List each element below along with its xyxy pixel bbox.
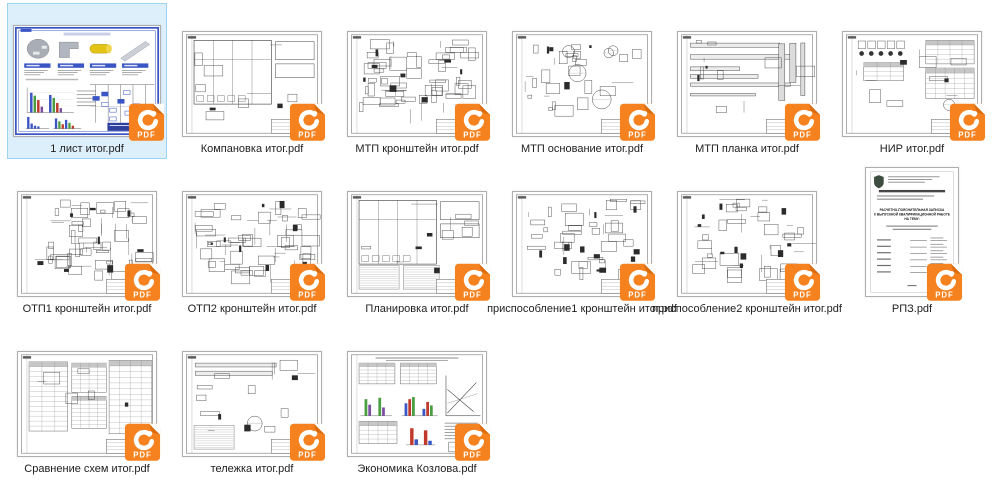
pdf-thumbnail[interactable]: PDF [182, 351, 322, 457]
file-tile[interactable]: PDFЭкономика Козлова.pdf [337, 323, 497, 479]
svg-text:PDF: PDF [298, 451, 316, 460]
file-name-label[interactable]: МТП основание итог.pdf [521, 143, 643, 156]
foxit-pdf-badge-icon: PDF [124, 261, 161, 302]
svg-text:PDF: PDF [298, 131, 316, 140]
foxit-pdf-badge-icon: PDF [949, 101, 986, 142]
file-tile[interactable]: PDFКомпановка итог.pdf [172, 3, 332, 159]
svg-text:PDF: PDF [298, 291, 316, 300]
file-tile[interactable]: PDFПланировка итог.pdf [337, 163, 497, 319]
foxit-pdf-badge-icon: PDF [454, 261, 491, 302]
file-tile[interactable]: PDFМТП основание итог.pdf [502, 3, 662, 159]
svg-text:PDF: PDF [463, 291, 481, 300]
pdf-thumbnail[interactable]: PDF [512, 31, 652, 137]
foxit-pdf-badge-icon: PDF [784, 101, 821, 142]
svg-text:РАСЧЕТНО-ПОЯСНИТЕЛЬНАЯ ЗАПИСКА: РАСЧЕТНО-ПОЯСНИТЕЛЬНАЯ ЗАПИСКА [880, 208, 945, 212]
pdf-thumbnail[interactable]: PDF [347, 191, 487, 297]
svg-text:PDF: PDF [463, 131, 481, 140]
file-tile[interactable]: PDF1 лист итог.pdf [7, 3, 167, 159]
file-tile[interactable]: PDFМТП кронштейн итог.pdf [337, 3, 497, 159]
pdf-thumbnail[interactable]: PDF [842, 31, 982, 137]
pdf-thumbnail[interactable]: PDF [182, 31, 322, 137]
file-name-label[interactable]: Экономика Козлова.pdf [357, 463, 476, 476]
svg-text:PDF: PDF [628, 131, 646, 140]
foxit-pdf-badge-icon: PDF [454, 101, 491, 142]
file-tile[interactable]: PDFСравнение схем итог.pdf [7, 323, 167, 479]
file-tile[interactable]: РАСЧЕТНО-ПОЯСНИТЕЛЬНАЯ ЗАПИСКАК ВЫПУСКНО… [832, 163, 992, 319]
file-grid: PDF1 лист итог.pdfPDFКомпановка итог.pdf… [0, 0, 1000, 482]
file-name-label[interactable]: Сравнение схем итог.pdf [24, 463, 149, 476]
svg-text:PDF: PDF [958, 131, 976, 140]
svg-text:К ВЫПУСКНОЙ КВАЛИФИКАЦИОННОЙ Р: К ВЫПУСКНОЙ КВАЛИФИКАЦИОННОЙ РАБОТЕ [874, 213, 951, 217]
foxit-pdf-badge-icon: PDF [619, 101, 656, 142]
svg-text:PDF: PDF [137, 131, 155, 140]
file-name-label[interactable]: ОТП2 кронштейн итог.pdf [188, 303, 317, 316]
foxit-pdf-badge-icon: PDF [128, 101, 165, 142]
file-tile[interactable]: PDFОТП2 кронштейн итог.pdf [172, 163, 332, 319]
file-name-label[interactable]: МТП кронштейн итог.pdf [355, 143, 478, 156]
foxit-pdf-badge-icon: PDF [784, 261, 821, 302]
pdf-thumbnail[interactable]: PDF [347, 351, 487, 457]
pdf-thumbnail[interactable]: PDF [182, 191, 322, 297]
svg-text:PDF: PDF [628, 291, 646, 300]
file-name-label[interactable]: приспособление1 кронштейн итог.pdf [487, 303, 677, 316]
file-name-label[interactable]: приспособление2 кронштейн итог.pdf [652, 303, 842, 316]
pdf-thumbnail[interactable]: PDF [13, 25, 161, 137]
svg-text:PDF: PDF [463, 451, 481, 460]
file-name-label[interactable]: Планировка итог.pdf [365, 303, 468, 316]
pdf-thumbnail[interactable]: РАСЧЕТНО-ПОЯСНИТЕЛЬНАЯ ЗАПИСКАК ВЫПУСКНО… [865, 167, 959, 297]
svg-text:НА ТЕМУ:: НА ТЕМУ: [904, 217, 919, 221]
file-tile[interactable]: PDFприспособление2 кронштейн итог.pdf [667, 163, 827, 319]
file-tile[interactable]: PDFНИР итог.pdf [832, 3, 992, 159]
file-name-label[interactable]: Компановка итог.pdf [201, 143, 304, 156]
foxit-pdf-badge-icon: PDF [124, 421, 161, 462]
foxit-pdf-badge-icon: PDF [289, 421, 326, 462]
file-name-label[interactable]: НИР итог.pdf [880, 143, 944, 156]
pdf-thumbnail[interactable]: PDF [677, 191, 817, 297]
svg-text:PDF: PDF [793, 131, 811, 140]
foxit-pdf-badge-icon: PDF [454, 421, 491, 462]
pdf-thumbnail[interactable]: PDF [677, 31, 817, 137]
foxit-pdf-badge-icon: PDF [289, 261, 326, 302]
svg-text:PDF: PDF [793, 291, 811, 300]
file-name-label[interactable]: МТП планка итог.pdf [695, 143, 799, 156]
file-name-label[interactable]: 1 лист итог.pdf [50, 143, 124, 156]
foxit-pdf-badge-icon: PDF [289, 101, 326, 142]
pdf-thumbnail[interactable]: PDF [347, 31, 487, 137]
file-name-label[interactable]: РПЗ.pdf [892, 303, 932, 316]
svg-text:PDF: PDF [133, 451, 151, 460]
foxit-pdf-badge-icon: PDF [619, 261, 656, 302]
file-tile[interactable]: PDFприспособление1 кронштейн итог.pdf [502, 163, 662, 319]
pdf-thumbnail[interactable]: PDF [17, 351, 157, 457]
pdf-thumbnail[interactable]: PDF [512, 191, 652, 297]
svg-text:PDF: PDF [133, 291, 151, 300]
pdf-thumbnail[interactable]: PDF [17, 191, 157, 297]
file-name-label[interactable]: ОТП1 кронштейн итог.pdf [23, 303, 152, 316]
file-tile[interactable]: PDFОТП1 кронштейн итог.pdf [7, 163, 167, 319]
file-tile[interactable]: PDFМТП планка итог.pdf [667, 3, 827, 159]
file-tile[interactable]: PDFтележка итог.pdf [172, 323, 332, 479]
file-name-label[interactable]: тележка итог.pdf [211, 463, 294, 476]
foxit-pdf-badge-icon: PDF [926, 261, 963, 302]
svg-text:PDF: PDF [935, 291, 953, 300]
